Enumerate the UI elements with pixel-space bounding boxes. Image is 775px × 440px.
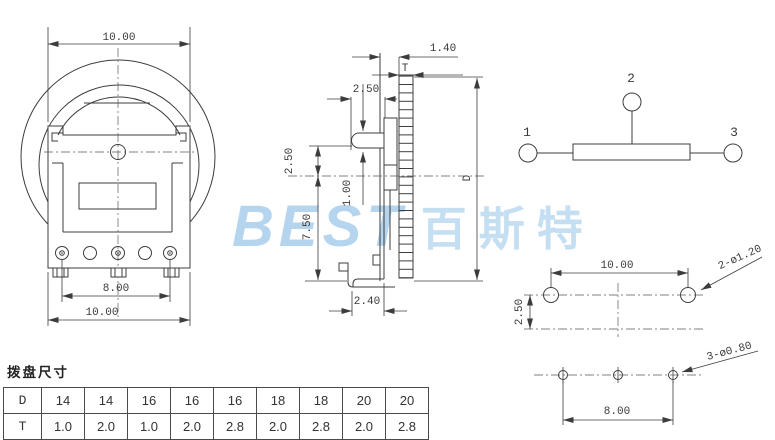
cell-d: 16 (128, 388, 171, 414)
cell-d: 18 (300, 388, 343, 414)
dim-label-pin-spacing-pcb: 8.00 (604, 406, 630, 418)
row-d-header: D (4, 388, 42, 414)
dim-label-offset: 1.40 (430, 43, 456, 55)
bent-foot-inner (353, 279, 384, 287)
dim-label-hole-spacing: 10.00 (600, 260, 633, 272)
dim-label-thickness: T (402, 63, 409, 75)
terminal-2-label: 2 (627, 71, 635, 86)
pcb-layout-drawing: 10.00 2.50 2-ø1.20 3-ø0.80 8.00 (514, 243, 764, 425)
terminal-1-label: 1 (523, 125, 531, 140)
foot-tab (339, 263, 348, 271)
hub-block (384, 118, 397, 190)
dim-label-row-spacing: 2.50 (514, 299, 526, 325)
bent-foot-outer (348, 263, 395, 287)
label-small-holes: 3-ø0.80 (706, 340, 754, 364)
cell-d: 16 (214, 388, 257, 414)
dim-label-height: 7.50 (302, 214, 314, 240)
dim-label-width-bottom: 10.00 (85, 307, 118, 319)
terminal-3-circle (724, 144, 742, 162)
terminal-2-circle (623, 93, 641, 111)
dim-label-center: 2.50 (284, 148, 296, 174)
dim-label-foot: 2.40 (354, 296, 380, 308)
cell-d: 20 (343, 388, 386, 414)
dim-label-pin-spacing: 8.00 (103, 283, 129, 295)
dim-label-diameter: D (462, 174, 474, 181)
side-tab (373, 255, 380, 265)
cell-d: 16 (171, 388, 214, 414)
cell-d: 14 (85, 388, 128, 414)
actuator-lever (352, 133, 385, 148)
dim-label-lever: 2.50 (353, 84, 379, 96)
side-view-drawing: 1.40 T 2.50 1.00 2.50 7.50 (284, 43, 484, 316)
table-row-d: D 14 14 16 16 16 18 18 20 20 (4, 388, 429, 414)
table-title: 拨盘尺寸 (7, 361, 429, 381)
cell-d: 18 (257, 388, 300, 414)
cell-d: 14 (42, 388, 85, 414)
solder-pins (53, 268, 179, 277)
dial-knurled-strip (399, 75, 413, 278)
dial-size-table: 拨盘尺寸 D 14 14 16 16 16 18 18 20 20 T 1.0 … (3, 361, 429, 440)
resistor-element (573, 144, 690, 160)
dim-label-axis: 1.00 (342, 180, 354, 206)
terminal-1-circle (519, 144, 537, 162)
terminal-3-label: 3 (730, 125, 738, 140)
front-view-drawing: 10.00 8.00 10.00 (21, 27, 215, 326)
cell-d: 20 (386, 388, 429, 414)
dim-label-width-top: 10.00 (102, 32, 135, 44)
schematic-drawing: 1 2 3 (519, 71, 742, 162)
